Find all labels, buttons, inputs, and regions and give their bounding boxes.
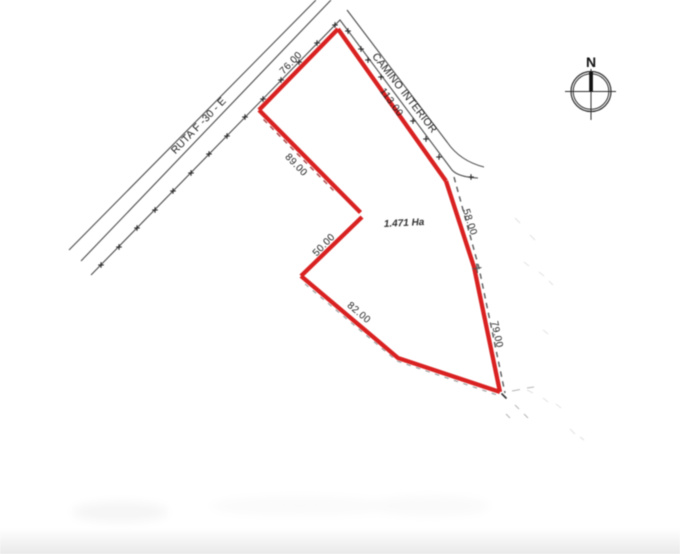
- svg-text:N: N: [586, 54, 596, 70]
- svg-text:1.471 Ha: 1.471 Ha: [384, 217, 426, 230]
